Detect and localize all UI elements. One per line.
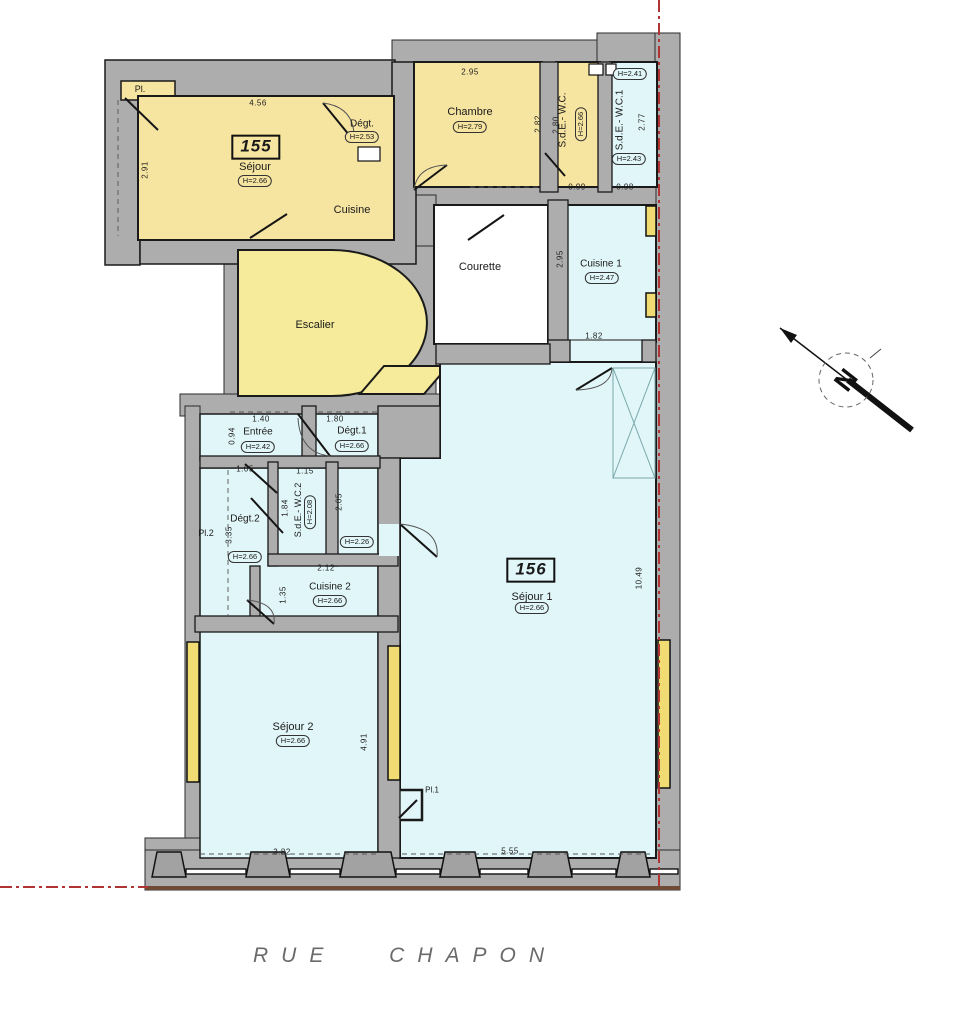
room-label-13: Dégt.2 — [230, 514, 259, 525]
room-label-16: Séjour 2 — [273, 721, 314, 733]
height-badge-5: H=2.43 — [612, 153, 646, 165]
dimension-label-19: 2.05 — [336, 493, 345, 511]
room-label-4: Chambre — [447, 106, 492, 118]
dimension-label-15: 2.77 — [639, 113, 648, 131]
room-label-18: Pl.1 — [425, 787, 439, 796]
room-label-15: Cuisine 2 — [309, 582, 351, 593]
dimension-label-16: 2.95 — [557, 250, 566, 268]
room-label-2: Dégt. — [350, 119, 374, 130]
dimension-label-20: 3.35 — [226, 526, 235, 544]
height-badge-13: H=2.66 — [276, 735, 310, 747]
dimension-label-8: 1.15 — [296, 468, 314, 477]
street-name: RUE CHAPON — [253, 944, 557, 968]
height-badge-3: H=2.66 — [575, 107, 587, 141]
property-line-horizontal — [0, 886, 148, 888]
property-line-vertical — [658, 0, 660, 888]
dimension-label-3: 0.98 — [616, 184, 634, 193]
dimension-label-23: 10.49 — [636, 567, 645, 590]
dimension-label-5: 1.40 — [252, 416, 270, 425]
dimension-label-13: 2.82 — [535, 115, 544, 133]
dimension-label-21: 1.35 — [280, 586, 289, 604]
dimension-label-18: 1.84 — [282, 499, 291, 517]
dimension-label-7: 1.05 — [236, 466, 254, 475]
room-label-10: Entrée — [243, 427, 272, 438]
height-badge-9: H=2.08 — [304, 495, 316, 529]
labels-layer: 155156Pl.SéjourDégt.CuisineChambreS.d.E.… — [0, 0, 953, 1009]
height-badge-6: H=2.47 — [585, 272, 619, 284]
dimension-label-0: 4.56 — [249, 100, 267, 109]
room-label-12: S.d.E.- W.C.2 — [294, 483, 304, 538]
dimension-label-12: 2.91 — [142, 161, 151, 179]
room-label-14: Pl.2 — [198, 529, 214, 539]
room-label-3: Cuisine — [334, 204, 371, 216]
height-badge-14: H=2.66 — [515, 602, 549, 614]
height-badge-8: H=2.66 — [335, 440, 369, 452]
dimension-label-10: 3.82 — [273, 849, 291, 858]
unit-number-156: 156 — [506, 558, 555, 583]
dimension-label-2: 0.99 — [568, 184, 586, 193]
dimension-label-22: 4.91 — [361, 733, 370, 751]
height-badge-7: H=2.42 — [241, 441, 275, 453]
dimension-label-1: 2.95 — [461, 69, 479, 78]
floor-plan-page: { "street": {"label": "RUE CHAPON"}, "no… — [0, 0, 953, 1009]
unit-number-155: 155 — [231, 135, 280, 160]
height-badge-10: H=2.26 — [340, 536, 374, 548]
room-label-0: Pl. — [135, 85, 146, 95]
room-label-9: Escalier — [295, 319, 334, 331]
height-badge-4: H=2.41 — [613, 68, 647, 80]
height-badge-12: H=2.66 — [313, 595, 347, 607]
dimension-label-11: 5.55 — [501, 848, 519, 857]
dimension-label-14: 2.80 — [553, 116, 562, 134]
room-label-11: Dégt.1 — [337, 426, 366, 437]
height-badge-2: H=2.79 — [453, 121, 487, 133]
dimension-label-4: 1.82 — [585, 333, 603, 342]
dimension-label-6: 1.80 — [326, 416, 344, 425]
room-label-6: S.d.E.- W.C.1 — [615, 90, 626, 151]
dimension-label-17: 0.94 — [229, 427, 238, 445]
room-label-8: Cuisine 1 — [580, 259, 622, 270]
dimension-label-9: 2.12 — [317, 565, 335, 574]
height-badge-11: H=2.66 — [228, 551, 262, 563]
height-badge-0: H=2.66 — [238, 175, 272, 187]
room-label-1: Séjour — [239, 161, 271, 173]
room-label-7: Courette — [459, 261, 501, 273]
height-badge-1: H=2.53 — [345, 131, 379, 143]
